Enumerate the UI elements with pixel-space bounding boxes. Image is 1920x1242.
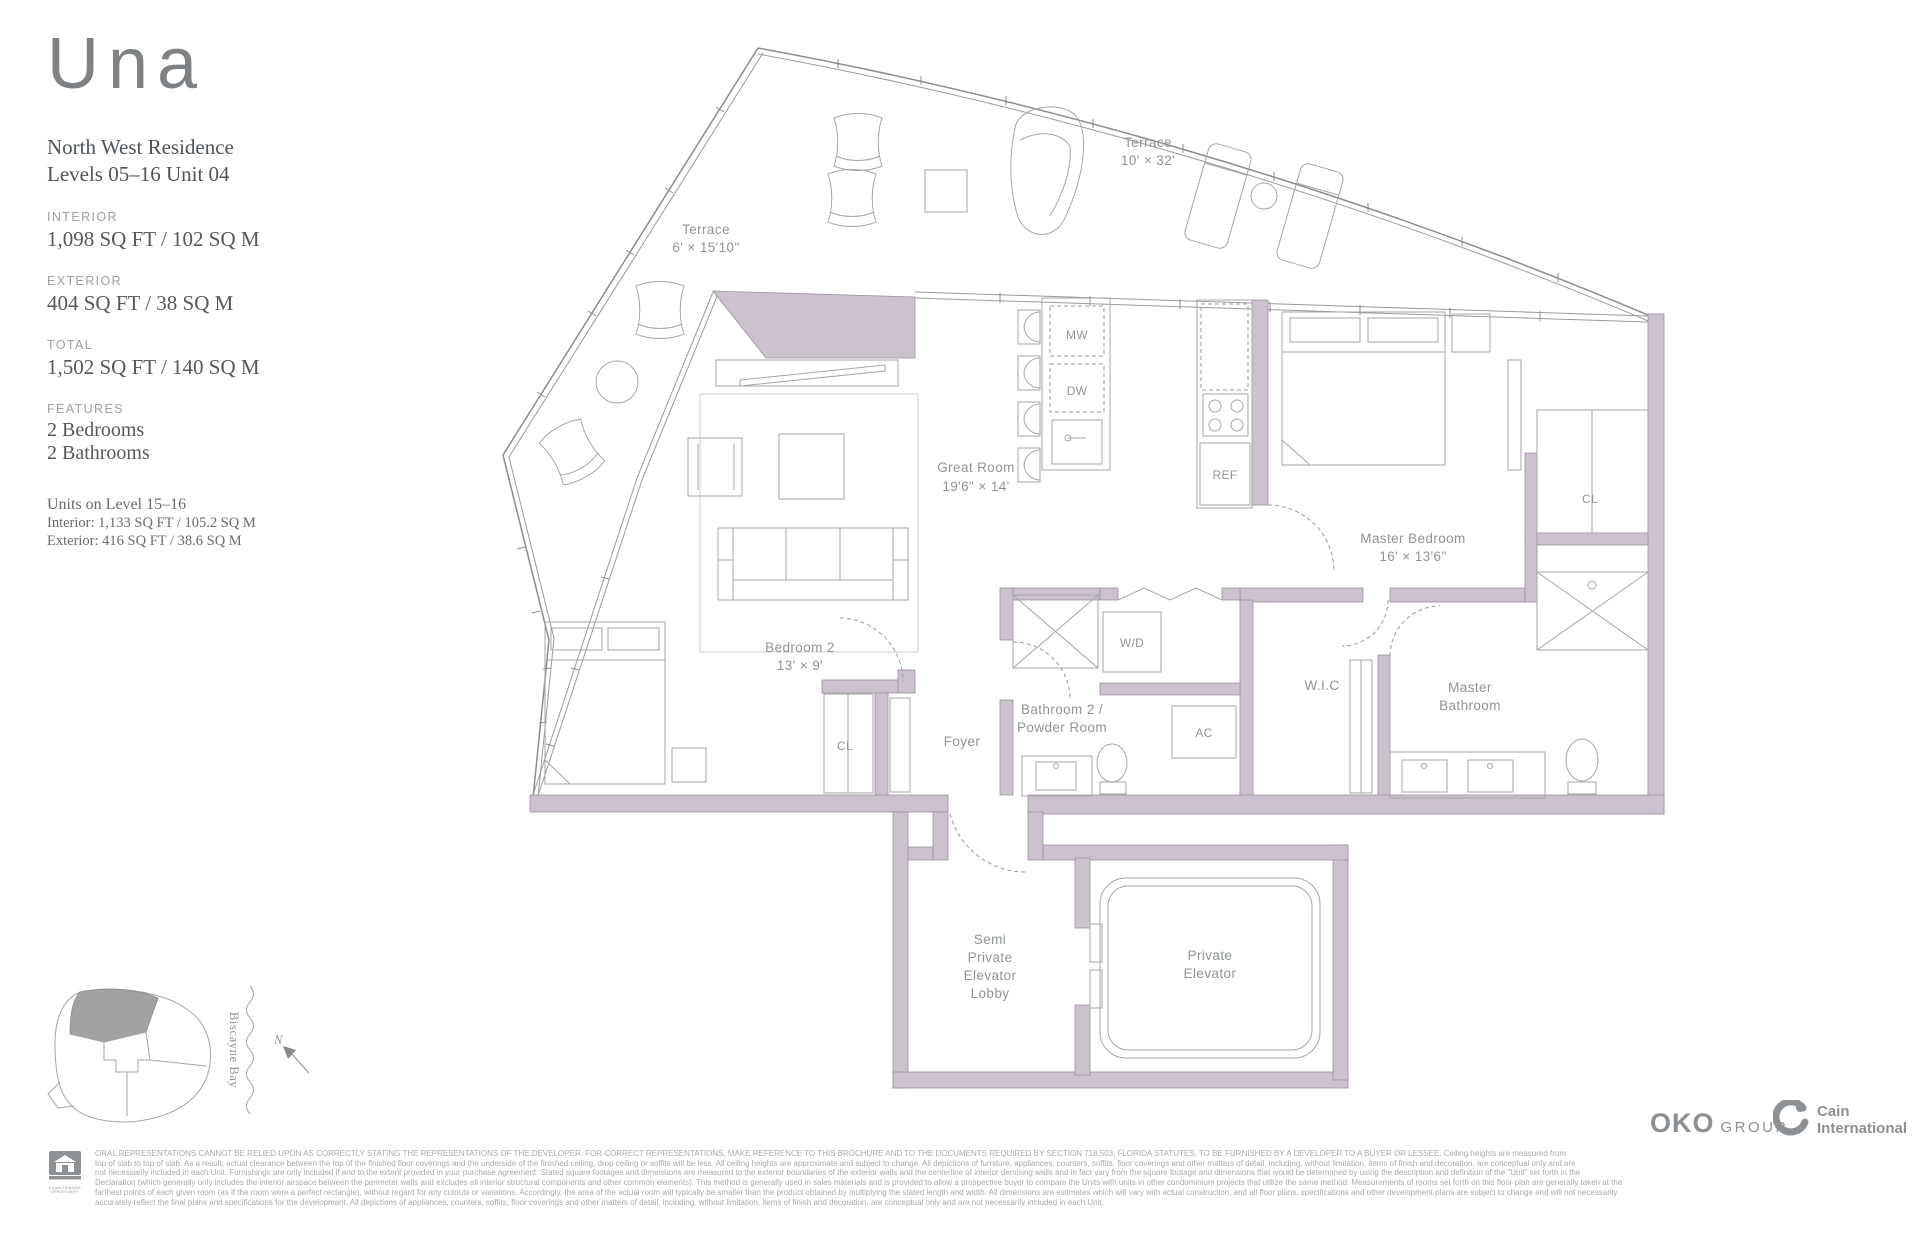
terrace-top-label: Terrace [1124, 135, 1172, 150]
great-room-label: Great Room [937, 460, 1015, 475]
bathroom2 [1013, 595, 1372, 796]
great-room-dim: 19'6" × 14' [942, 479, 1009, 494]
elevator-label-1: Private [1188, 948, 1233, 963]
cain-logo-line2: International [1817, 1121, 1907, 1137]
kitchen: MW DW REF [1018, 298, 1252, 508]
cl2-label: CL [837, 739, 853, 753]
bedroom2 [545, 622, 910, 793]
nightstand [1452, 314, 1490, 352]
bedroom2-label: Bedroom 2 [765, 640, 835, 655]
sun-lounger [1275, 162, 1345, 270]
nightstand2 [672, 748, 706, 782]
master-shower [1537, 572, 1648, 650]
equal-housing-text-2: OPPORTUNITY [44, 1190, 86, 1194]
floorplan-page: Una North West Residence Levels 05–16 Un… [0, 0, 1920, 1242]
floor-plan: MW DW REF [0, 0, 1920, 1242]
label-refrigerator: REF [1213, 468, 1238, 482]
great-room-furniture [688, 360, 918, 652]
toilet2 [1097, 744, 1127, 782]
label-dishwasher: DW [1067, 384, 1088, 398]
terrace-left-dim: 6' × 15'10" [672, 240, 739, 255]
bath2-label-2: Powder Room [1017, 720, 1107, 735]
oko-logo-bold: OKO [1650, 1108, 1715, 1138]
disclaimer-line: top of slab to top of slab. As a result,… [95, 1159, 1907, 1169]
master-toilet [1566, 739, 1598, 781]
room-labels: Terrace 6' × 15'10" Terrace 10' × 32' Gr… [672, 135, 1598, 1001]
cain-logo-line1: Cain [1817, 1104, 1907, 1120]
wic-label: W.I.C [1305, 678, 1340, 693]
disclaimer-line: ORAL REPRESENTATIONS CANNOT BE RELIED UP… [95, 1149, 1907, 1159]
bar-stools [1018, 310, 1040, 482]
lobby-label-1: Semi [974, 932, 1006, 947]
tv-cabinet [1508, 360, 1521, 470]
lobby-label-2: Private [968, 950, 1013, 965]
elevator-label-2: Elevator [1184, 966, 1237, 981]
sofa [718, 528, 908, 600]
disclaimer-line: accurately reflect the final plans and s… [95, 1198, 1907, 1208]
master-bathroom [1390, 739, 1598, 798]
foyer-label: Foyer [944, 734, 981, 749]
label-microwave: MW [1066, 328, 1088, 342]
equal-housing-icon [48, 1150, 82, 1180]
equal-housing-logo: EQUAL HOUSING OPPORTUNITY [44, 1150, 86, 1194]
terrace-top-dim: 10' × 32' [1121, 153, 1175, 168]
foyer-closet [890, 698, 910, 792]
ac-label: AC [1195, 726, 1212, 740]
bath2-label-1: Bathroom 2 / [1021, 702, 1103, 717]
master-bedroom-dim: 16' × 13'6" [1379, 549, 1446, 564]
oko-group-logo: OKOGROUP [1650, 1108, 1788, 1139]
north-label: N [273, 1033, 283, 1047]
cain-international-logo: Cain International [1773, 1100, 1907, 1141]
side-table [925, 170, 967, 212]
disclaimer-line: farthest points of each given room (as i… [95, 1188, 1907, 1198]
master-bedroom-label: Master Bedroom [1360, 531, 1465, 546]
round-side-table [1251, 183, 1277, 209]
bedroom2-dim: 13' × 9' [777, 658, 823, 673]
round-table [596, 361, 638, 403]
legal-disclaimer: ORAL REPRESENTATIONS CANNOT BE RELIED UP… [95, 1149, 1907, 1207]
wd-label: W/D [1120, 636, 1144, 650]
bay-label: Biscayne Bay [227, 1012, 241, 1088]
north-arrow: N [273, 1033, 309, 1073]
coffee-table [779, 434, 844, 499]
cl-master-label: CL [1582, 492, 1598, 506]
lobby-label-4: Lobby [971, 986, 1010, 1001]
terrace-furniture [537, 107, 1345, 489]
cain-mark-icon [1773, 1100, 1809, 1141]
disclaimer-line: not necessarily included in each Unit. F… [95, 1168, 1907, 1178]
site-map: Biscayne Bay N [48, 986, 309, 1122]
bay-waterline [247, 986, 254, 1114]
lobby-label-3: Elevator [964, 968, 1017, 983]
terrace-left-label: Terrace [682, 222, 730, 237]
master-bed [1282, 312, 1445, 465]
disclaimer-line: Declaration (which generally only includ… [95, 1178, 1907, 1188]
highlighted-unit [70, 989, 158, 1042]
master-bath-label-1: Master [1448, 680, 1492, 695]
master-bath-label-2: Bathroom [1439, 698, 1501, 713]
cabana-chair [1011, 107, 1084, 234]
